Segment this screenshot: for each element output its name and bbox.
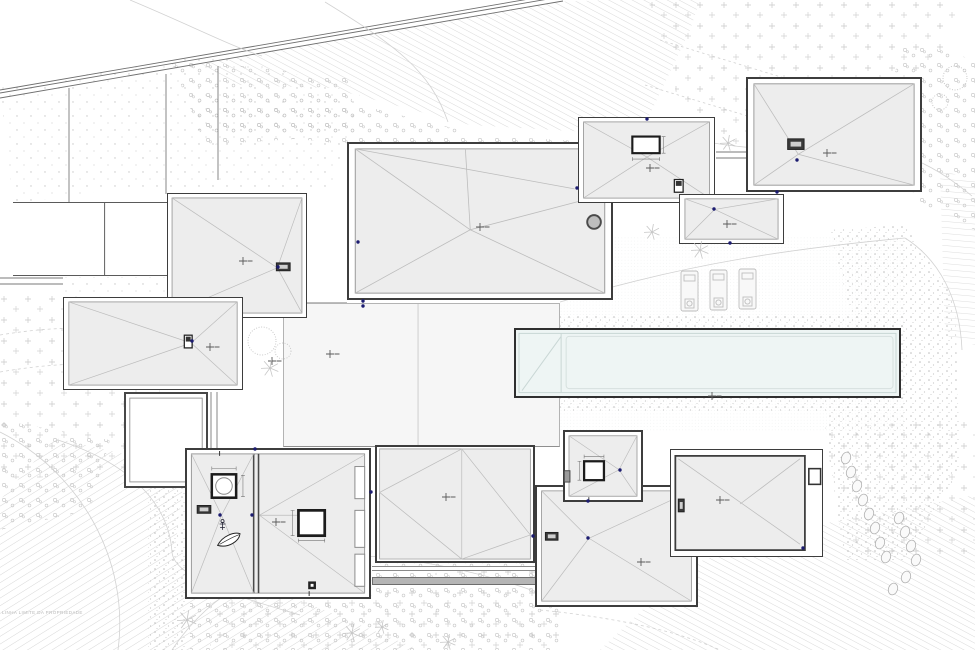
bush-icon bbox=[943, 66, 967, 90]
crosses-bottom-right bbox=[820, 415, 975, 555]
roof-main-central bbox=[347, 142, 613, 300]
star-plant-icon bbox=[177, 610, 196, 629]
roof-south-east bbox=[670, 449, 823, 557]
stepping-stone-icon bbox=[905, 539, 918, 553]
roof-vent-icon bbox=[276, 263, 290, 271]
bush-icon bbox=[932, 94, 948, 110]
skylight-icon bbox=[632, 137, 659, 154]
hatch-icon bbox=[308, 581, 316, 589]
star-plant-icon bbox=[375, 620, 388, 634]
roof-southwest-wing bbox=[185, 448, 371, 599]
roof-north-center bbox=[578, 117, 715, 203]
stepping-stone-icon bbox=[900, 570, 913, 584]
vineyard-far-right bbox=[940, 170, 975, 345]
scrub-top-left bbox=[170, 58, 355, 145]
chimney-icon bbox=[674, 180, 683, 193]
star-plant-icon bbox=[440, 634, 455, 650]
roof-west-lower bbox=[63, 297, 243, 390]
stepping-stone-icon bbox=[910, 553, 923, 567]
skylight-icon bbox=[298, 510, 324, 535]
star-plant-icon bbox=[720, 135, 735, 151]
scrub-left-bottom bbox=[0, 420, 110, 530]
road-boundary bbox=[0, 0, 563, 98]
sun-lounger-icon bbox=[710, 270, 727, 310]
boundary-label: LINHA LIMITE DA PROPRIEDADE bbox=[2, 610, 83, 615]
wall-tab-icon bbox=[564, 471, 570, 482]
stepping-stone-icon bbox=[863, 507, 876, 521]
star-plant-icon bbox=[644, 224, 659, 240]
sun-lounger-icon bbox=[739, 269, 756, 309]
bush-icon bbox=[248, 327, 276, 355]
site-plan-canvas: LINHA LIMITE DA PROPRIEDADE bbox=[0, 0, 975, 650]
round-skylight-frame-icon bbox=[212, 474, 236, 497]
star-plant-icon bbox=[261, 359, 278, 377]
stepping-stone-icon bbox=[857, 493, 870, 507]
roof-square-pavilion bbox=[563, 430, 643, 502]
chimney-icon bbox=[184, 335, 192, 348]
swimming-pool bbox=[514, 328, 901, 398]
spot-level-marker bbox=[268, 357, 282, 365]
roof-vent-icon bbox=[678, 499, 684, 512]
pool-steps-diagonal bbox=[522, 336, 561, 390]
stepping-stone-icon bbox=[845, 465, 858, 479]
clerestory-windows bbox=[355, 467, 365, 587]
courtyard-drive bbox=[13, 202, 168, 276]
vineyard-top bbox=[200, 0, 700, 135]
stepping-stone-icon bbox=[851, 479, 864, 493]
side-box-icon bbox=[809, 469, 821, 485]
roof-vent-icon bbox=[545, 532, 558, 540]
roof-annex-north bbox=[679, 194, 784, 244]
stepping-stone-icon bbox=[887, 582, 900, 596]
walkway-path bbox=[372, 577, 536, 585]
stepping-stone-icon bbox=[869, 521, 882, 535]
stepping-stone-icon bbox=[899, 525, 912, 539]
walkway-upper-edge bbox=[372, 566, 536, 571]
roof-south-diamond bbox=[375, 445, 535, 563]
stepping-stone-icon bbox=[840, 451, 853, 465]
round-skylight-icon bbox=[587, 215, 601, 229]
stipple-field-top-left bbox=[0, 52, 360, 204]
stepping-stone-icon bbox=[874, 536, 887, 550]
stepping-stone-icon bbox=[893, 511, 906, 525]
star-plant-icon bbox=[343, 624, 360, 642]
roof-north-east bbox=[746, 77, 922, 192]
roof-vent-icon bbox=[197, 505, 211, 513]
stepping-stone-icon bbox=[880, 550, 893, 564]
sun-lounger-icon bbox=[681, 271, 698, 311]
skylight-icon bbox=[584, 461, 604, 480]
roof-vent-icon bbox=[788, 139, 804, 150]
